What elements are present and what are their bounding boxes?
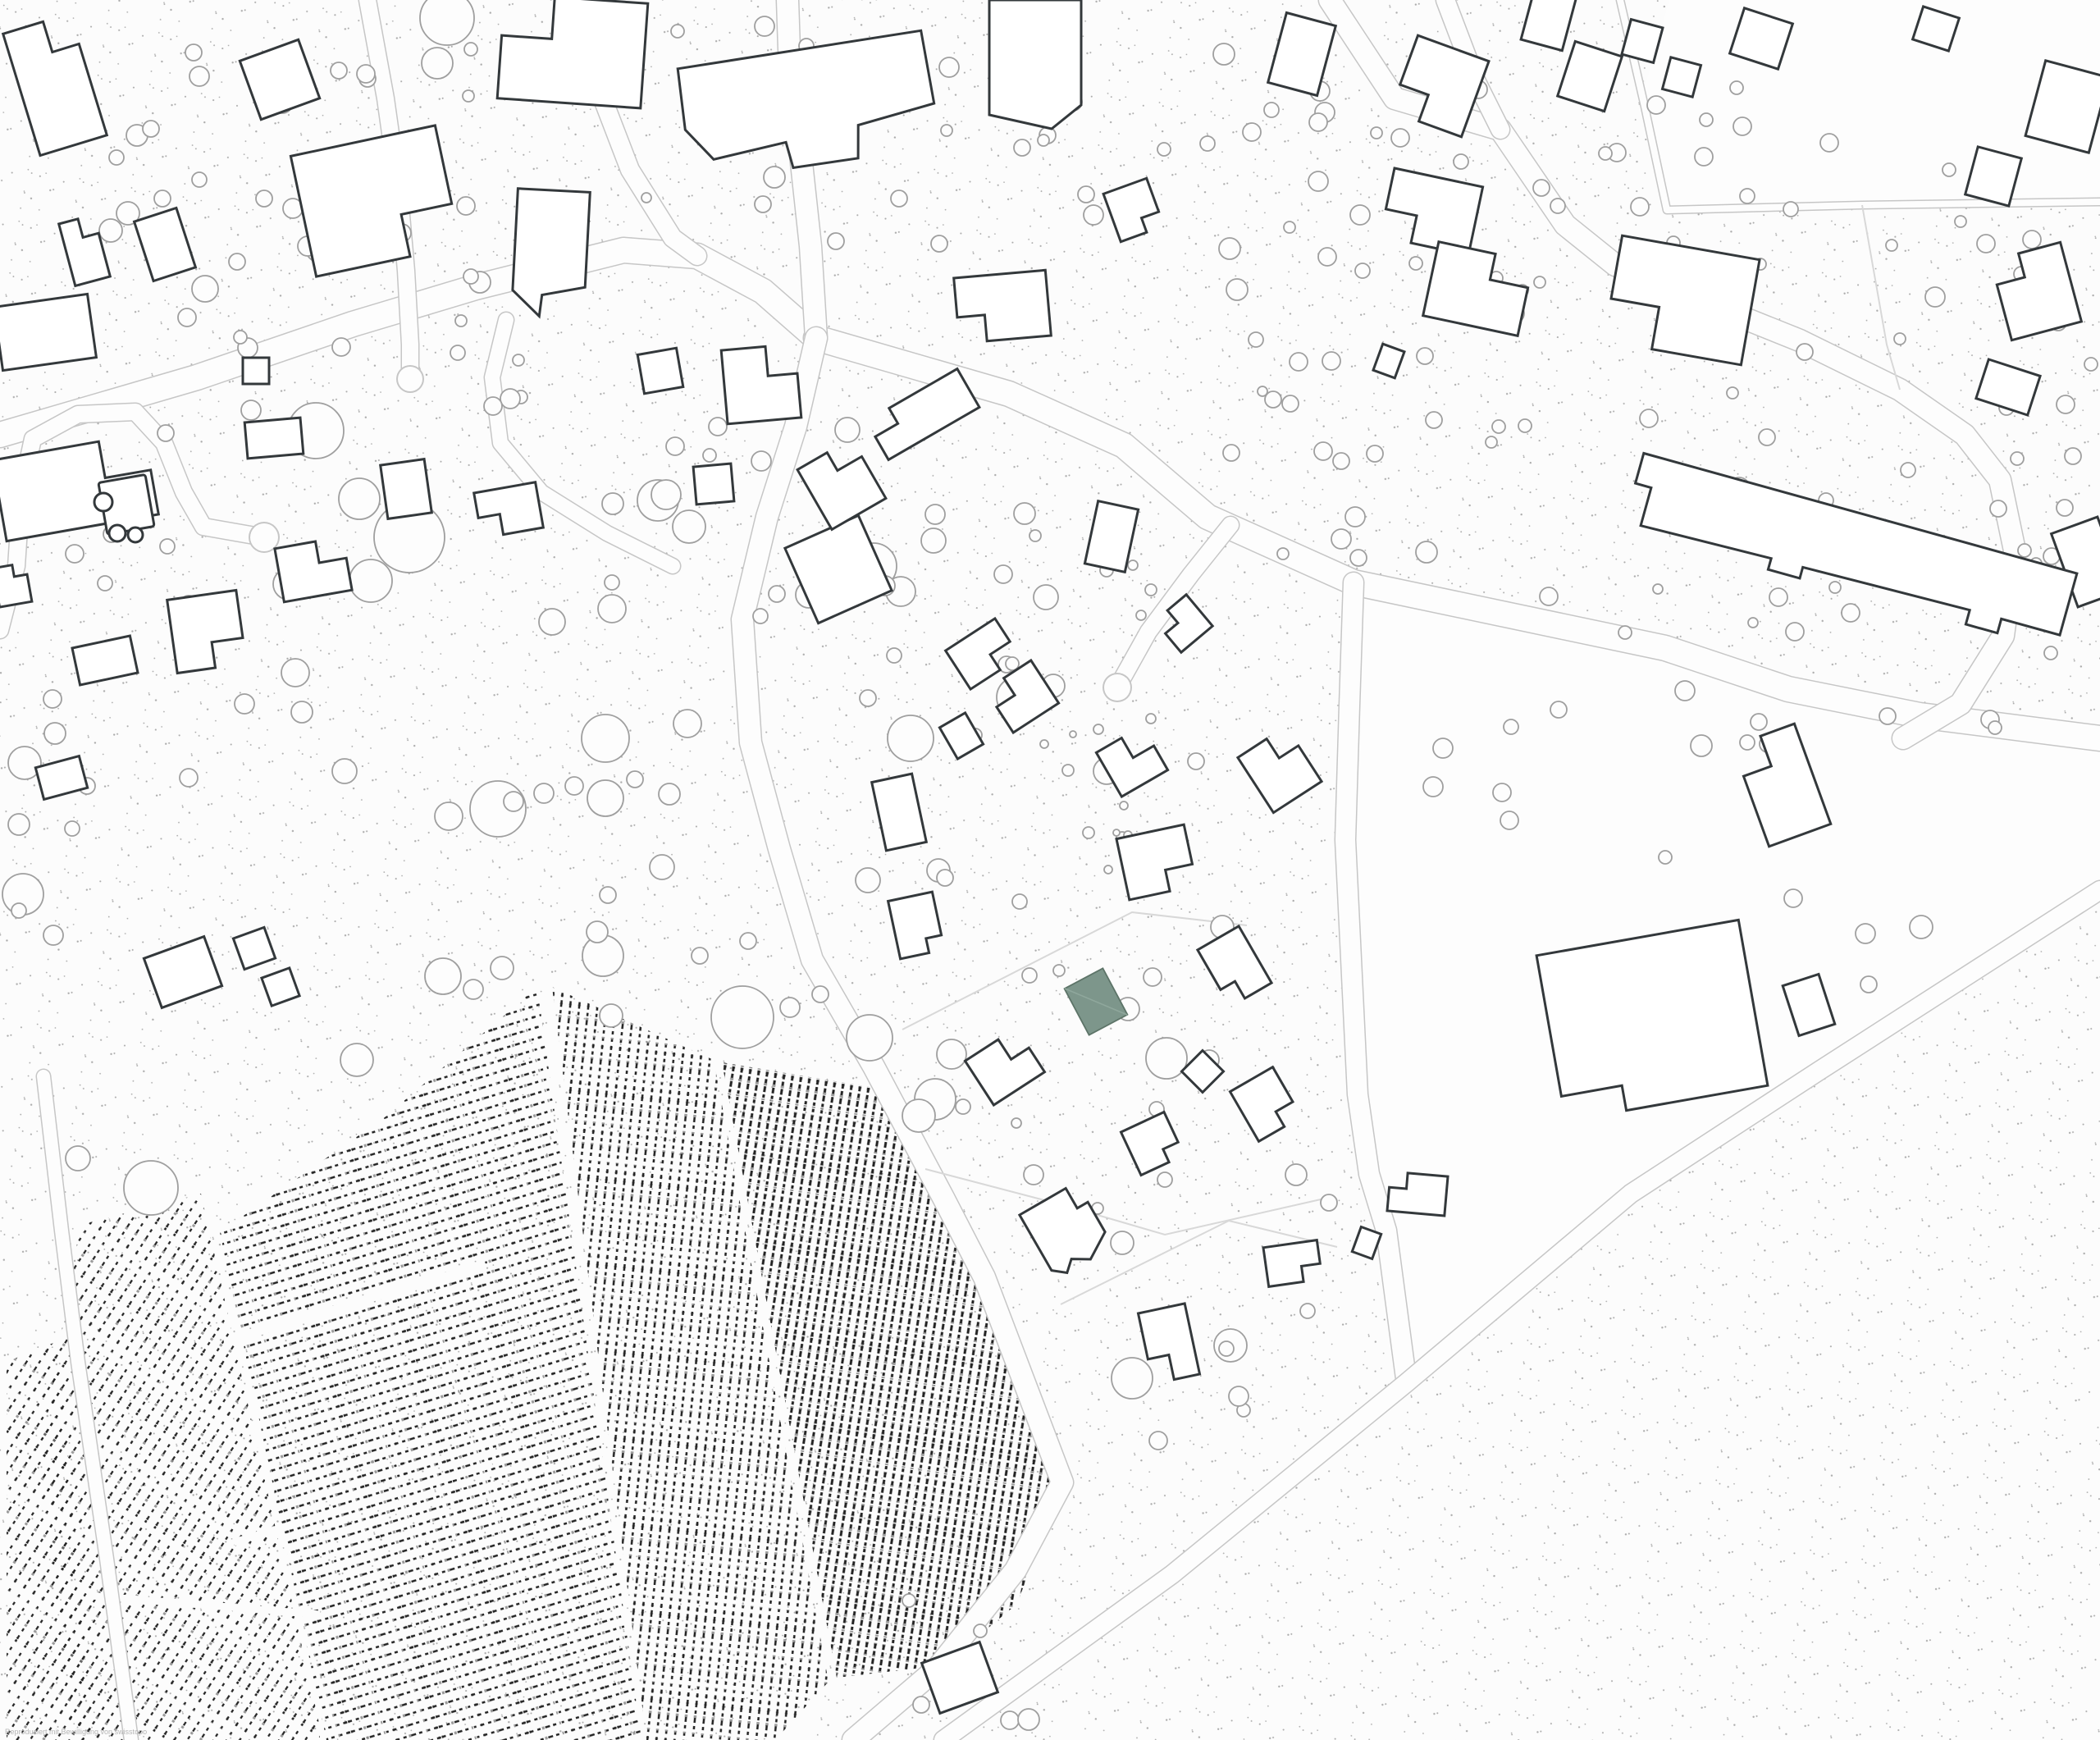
svg-text:Reproduziert mit Bewilligung v: Reproduziert mit Bewilligung von swissto…: [5, 1728, 147, 1736]
